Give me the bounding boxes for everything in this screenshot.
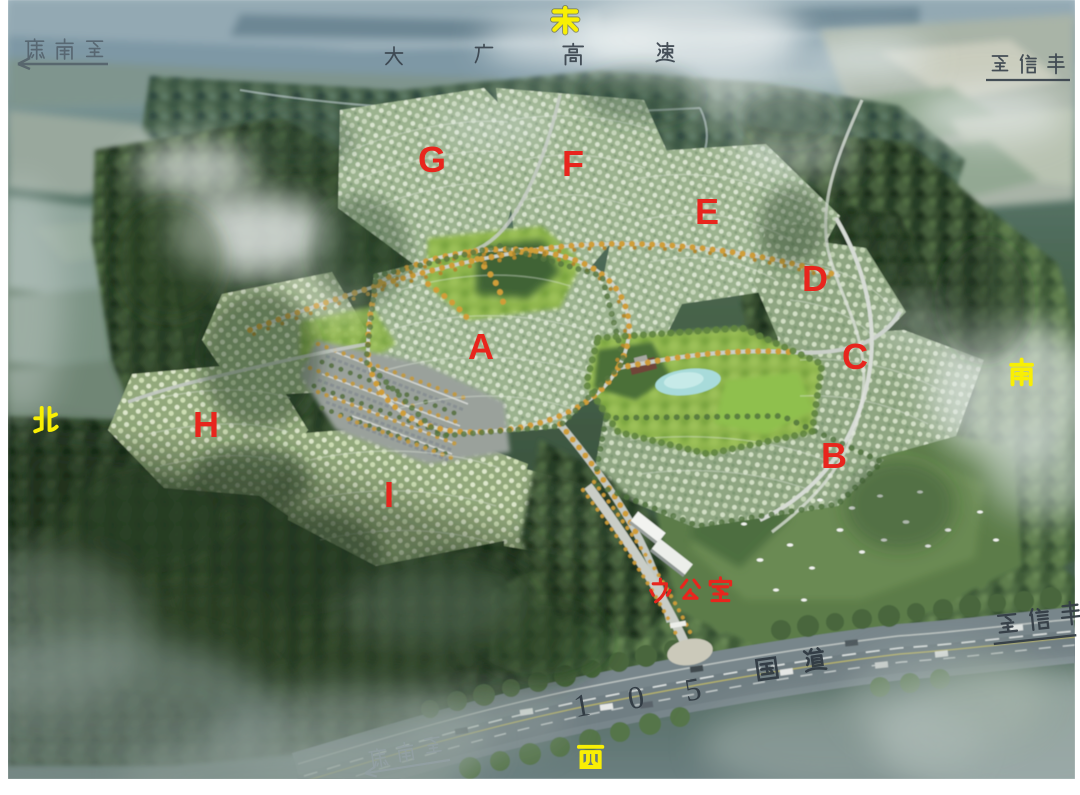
svg-text:B: B <box>821 435 847 476</box>
svg-text:H: H <box>193 404 219 445</box>
svg-text:D: D <box>802 258 828 299</box>
svg-text:G: G <box>418 139 446 180</box>
svg-text:F: F <box>562 143 584 184</box>
svg-text:E: E <box>695 191 719 232</box>
svg-text:I: I <box>384 474 394 515</box>
svg-text:A: A <box>468 326 494 367</box>
svg-text:C: C <box>842 336 868 377</box>
